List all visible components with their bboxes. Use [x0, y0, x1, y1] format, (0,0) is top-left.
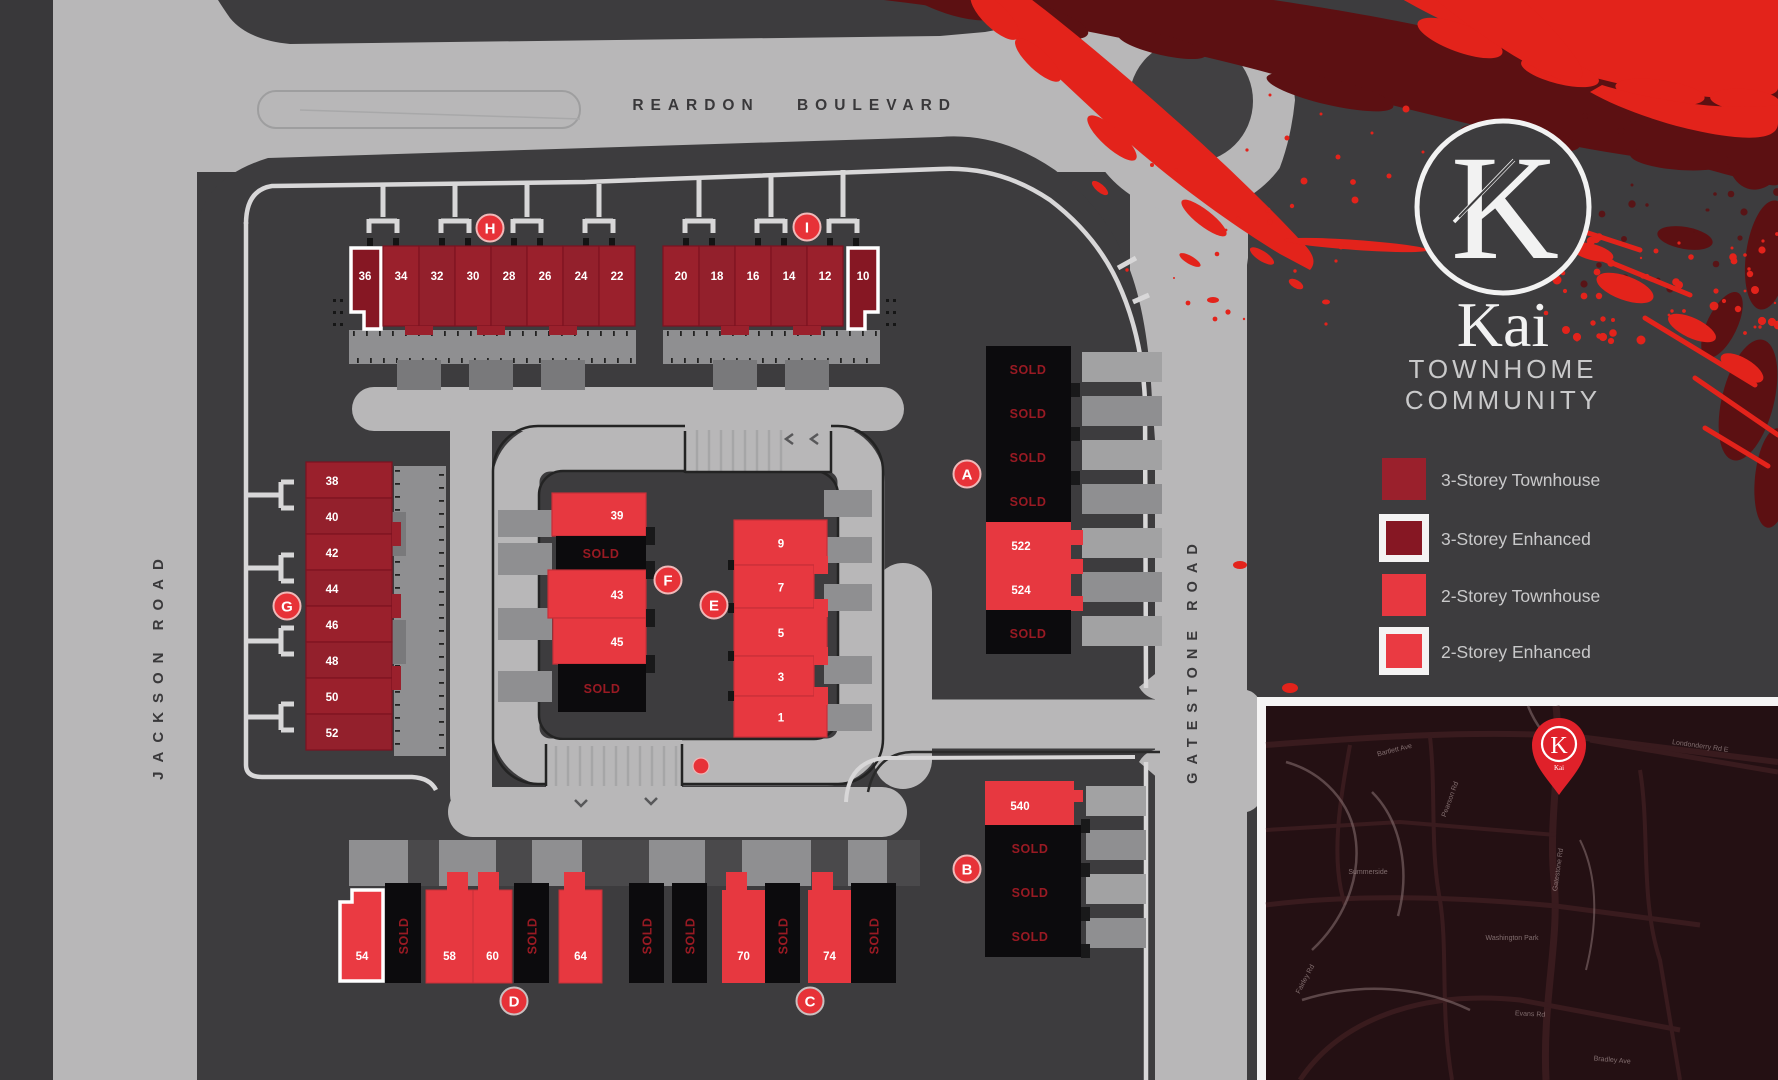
- svg-text:24: 24: [575, 271, 588, 283]
- svg-text:43: 43: [611, 590, 624, 602]
- svg-text:1: 1: [778, 713, 785, 725]
- svg-text:14: 14: [783, 271, 796, 283]
- svg-text:3-Storey Enhanced: 3-Storey Enhanced: [1441, 529, 1591, 549]
- svg-text:44: 44: [326, 584, 339, 596]
- svg-text:SOLD: SOLD: [777, 918, 791, 955]
- svg-text:SOLD: SOLD: [1012, 886, 1049, 900]
- svg-text:SOLD: SOLD: [1010, 363, 1047, 377]
- svg-text:A: A: [962, 467, 973, 484]
- svg-text:JACKSON ROAD: JACKSON ROAD: [150, 550, 167, 780]
- svg-text:39: 39: [611, 511, 624, 523]
- svg-text:58: 58: [443, 951, 456, 963]
- svg-text:Washington Park: Washington Park: [1485, 935, 1539, 942]
- svg-text:F: F: [663, 573, 672, 590]
- svg-text:K: K: [1550, 733, 1568, 759]
- svg-text:42: 42: [326, 548, 339, 560]
- svg-text:2-Storey Enhanced: 2-Storey Enhanced: [1441, 642, 1591, 662]
- svg-text:SOLD: SOLD: [1010, 407, 1047, 421]
- svg-text:GATESTONE ROAD: GATESTONE ROAD: [1185, 536, 1201, 784]
- svg-text:26: 26: [539, 271, 552, 283]
- svg-text:H: H: [485, 221, 496, 238]
- svg-text:Kai: Kai: [1554, 764, 1564, 772]
- svg-text:SOLD: SOLD: [584, 682, 621, 696]
- svg-text:40: 40: [326, 512, 339, 524]
- svg-text:SOLD: SOLD: [1012, 930, 1049, 944]
- svg-text:22: 22: [611, 271, 624, 283]
- svg-text:16: 16: [747, 271, 760, 283]
- svg-text:2-Storey Townhouse: 2-Storey Townhouse: [1441, 586, 1600, 606]
- svg-text:50: 50: [326, 692, 339, 704]
- svg-text:Summerside: Summerside: [1348, 869, 1387, 876]
- svg-text:SOLD: SOLD: [641, 918, 655, 955]
- svg-text:30: 30: [467, 271, 480, 283]
- svg-text:10: 10: [857, 271, 870, 283]
- svg-text:G: G: [281, 599, 293, 616]
- svg-text:3: 3: [778, 672, 784, 684]
- svg-text:522: 522: [1011, 541, 1030, 553]
- svg-text:9: 9: [778, 539, 784, 551]
- svg-text:5: 5: [778, 628, 785, 640]
- svg-text:SOLD: SOLD: [1012, 842, 1049, 856]
- svg-text:C: C: [805, 994, 816, 1011]
- svg-text:D: D: [509, 994, 520, 1011]
- svg-text:COMMUNITY: COMMUNITY: [1405, 385, 1601, 415]
- svg-text:46: 46: [326, 620, 339, 632]
- svg-text:SOLD: SOLD: [526, 918, 540, 955]
- svg-text:7: 7: [778, 583, 784, 595]
- svg-text:48: 48: [326, 656, 339, 668]
- svg-text:SOLD: SOLD: [1010, 627, 1047, 641]
- svg-text:SOLD: SOLD: [684, 918, 698, 955]
- svg-text:28: 28: [503, 271, 516, 283]
- svg-text:REARDON: REARDON: [632, 97, 759, 114]
- svg-text:524: 524: [1011, 585, 1031, 597]
- svg-text:BOULEVARD: BOULEVARD: [797, 97, 957, 114]
- svg-text:SOLD: SOLD: [583, 547, 620, 561]
- svg-text:45: 45: [611, 637, 624, 649]
- svg-text:20: 20: [675, 271, 688, 283]
- svg-text:SOLD: SOLD: [397, 918, 411, 955]
- svg-text:38: 38: [326, 476, 339, 488]
- svg-text:540: 540: [1010, 801, 1029, 813]
- svg-text:Kai: Kai: [1457, 289, 1549, 360]
- svg-text:12: 12: [819, 271, 832, 283]
- svg-text:B: B: [962, 862, 973, 879]
- svg-text:34: 34: [395, 271, 408, 283]
- svg-text:E: E: [709, 598, 719, 615]
- svg-text:36: 36: [359, 271, 372, 283]
- svg-text:54: 54: [356, 951, 369, 963]
- svg-text:SOLD: SOLD: [868, 918, 882, 955]
- svg-text:64: 64: [574, 951, 587, 963]
- svg-text:74: 74: [823, 951, 836, 963]
- svg-text:18: 18: [711, 271, 724, 283]
- svg-text:TOWNHOME: TOWNHOME: [1409, 354, 1598, 384]
- svg-text:52: 52: [326, 728, 339, 740]
- svg-text:SOLD: SOLD: [1010, 451, 1047, 465]
- svg-text:3-Storey Townhouse: 3-Storey Townhouse: [1441, 470, 1600, 490]
- svg-text:I: I: [805, 220, 809, 237]
- svg-text:70: 70: [737, 951, 750, 963]
- svg-text:SOLD: SOLD: [1010, 495, 1047, 509]
- svg-text:32: 32: [431, 271, 444, 283]
- svg-text:60: 60: [486, 951, 499, 963]
